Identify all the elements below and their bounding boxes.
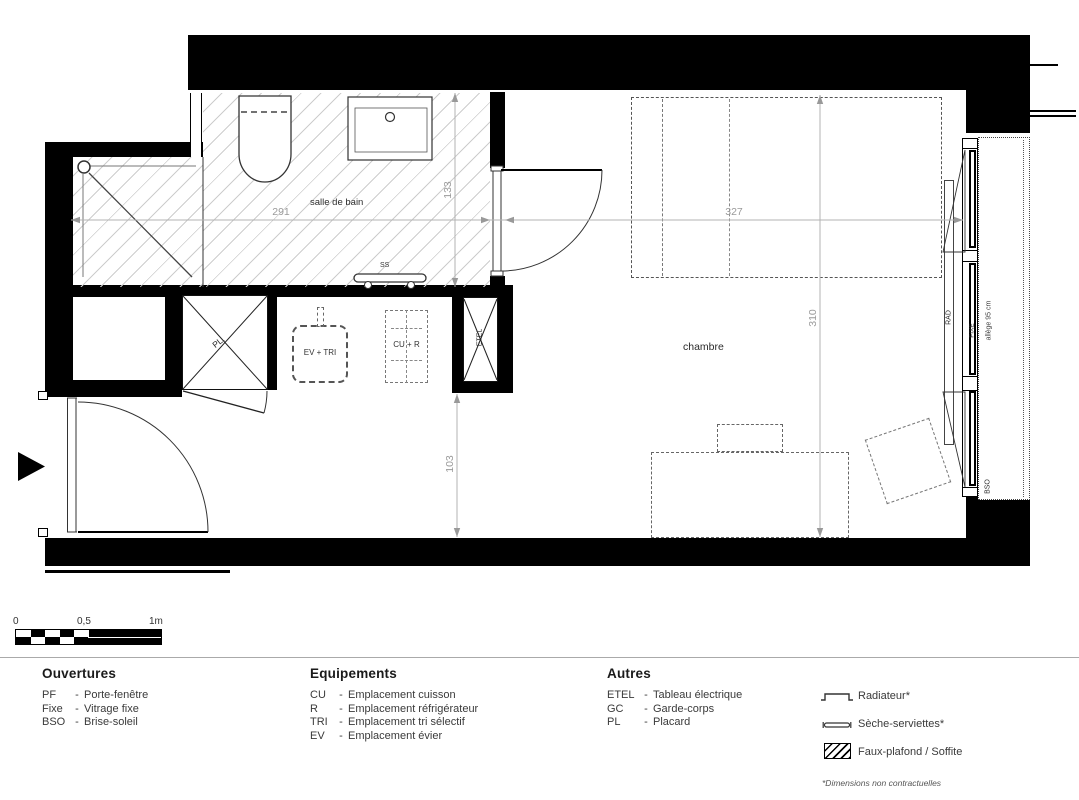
window-divider bbox=[962, 261, 978, 262]
entrance-arrow bbox=[18, 452, 45, 481]
label: Emplacement réfrigérateur bbox=[348, 703, 478, 715]
wall-bathroom-east-upper bbox=[490, 92, 505, 168]
scale-half: 0,5 bbox=[77, 616, 91, 627]
sun-shade-inner-line bbox=[1023, 140, 1024, 497]
floor-plan-sheet: salle de bain chambre SS EV + TRI CU + R… bbox=[0, 0, 1079, 800]
wall-top-right-block bbox=[966, 90, 1030, 133]
neighbour-line-1 bbox=[1030, 64, 1058, 66]
abbr: TRI bbox=[310, 716, 334, 730]
false-ceiling-icon bbox=[824, 743, 851, 759]
dim-passage: 103 bbox=[444, 449, 456, 479]
label: Emplacement évier bbox=[348, 730, 442, 742]
label: Placard bbox=[653, 716, 690, 728]
radiator-label: RAD bbox=[946, 303, 953, 333]
wall-bottom-right-block bbox=[966, 497, 1030, 542]
wall-shaft-south bbox=[45, 380, 182, 397]
legend-ouvertures-title: Ouvertures bbox=[42, 666, 116, 681]
label: Emplacement cuisson bbox=[348, 689, 456, 701]
towel-dryer-label: SS bbox=[380, 262, 389, 269]
window-divider bbox=[962, 148, 978, 149]
tap-symbol bbox=[317, 307, 324, 327]
dim-bedroom-width: 327 bbox=[719, 206, 749, 218]
door-jamb-nub-top bbox=[38, 391, 48, 400]
abbr: PF bbox=[42, 689, 70, 703]
label: Emplacement tri sélectif bbox=[348, 716, 465, 728]
towel-dryer-legend-label: Sèche-serviettes* bbox=[858, 718, 944, 730]
sink-sorting-label: EV + TRI bbox=[292, 348, 348, 357]
cooking-fridge-label: CU + R bbox=[385, 340, 428, 349]
sep: - bbox=[334, 730, 348, 744]
dim-bathroom-depth: 133 bbox=[442, 175, 454, 205]
scale-bar bbox=[15, 629, 162, 645]
wall-kitchen-east bbox=[452, 297, 463, 384]
label: Vitrage fixe bbox=[84, 703, 139, 715]
abbr: EV bbox=[310, 730, 334, 744]
sill-line-bottom-left bbox=[45, 570, 230, 573]
abbr: PL bbox=[607, 716, 639, 730]
sun-shade-label: BSO bbox=[985, 472, 992, 502]
abbr: R bbox=[310, 703, 334, 717]
wall-closet-east bbox=[268, 295, 277, 390]
cooking-zone-line-2 bbox=[391, 360, 422, 361]
sill-height-label: allège 95 cm bbox=[986, 291, 993, 351]
fixed-glazing-label: FIXE bbox=[969, 316, 976, 346]
window-sash-top bbox=[969, 150, 976, 248]
legend-separator bbox=[0, 657, 1079, 658]
bathroom-west-jamb bbox=[190, 93, 202, 157]
legend-ouvertures-list: PF-Porte-fenêtre Fixe-Vitrage fixe BSO-B… bbox=[42, 689, 148, 730]
sep: - bbox=[70, 703, 84, 717]
window-divider bbox=[962, 487, 978, 488]
abbr: BSO bbox=[42, 716, 70, 730]
desk-outline bbox=[651, 452, 849, 538]
radiator-icon bbox=[820, 690, 854, 702]
sep: - bbox=[639, 716, 653, 730]
label: Tableau électrique bbox=[653, 689, 742, 701]
abbr: CU bbox=[310, 689, 334, 703]
wall-shower-north bbox=[45, 142, 203, 157]
bed-outline bbox=[631, 97, 942, 278]
bathroom-label: salle de bain bbox=[310, 197, 363, 208]
chair-outline bbox=[717, 424, 783, 452]
bed-fold-line bbox=[729, 99, 730, 276]
window-sash-bottom bbox=[969, 391, 976, 486]
sep: - bbox=[70, 689, 84, 703]
wall-top bbox=[188, 35, 1030, 90]
shower-hatch-area bbox=[73, 157, 203, 287]
electrical-panel-label: ETEL bbox=[477, 323, 484, 353]
sep: - bbox=[639, 689, 653, 703]
abbr: GC bbox=[607, 703, 639, 717]
window-divider bbox=[962, 250, 978, 251]
legend-equipements-title: Equipements bbox=[310, 666, 397, 681]
sep: - bbox=[334, 703, 348, 717]
wall-bottom bbox=[45, 538, 1030, 566]
bed-pillow-line bbox=[662, 99, 663, 276]
towel-dryer-icon bbox=[822, 720, 852, 730]
armchair-outline bbox=[865, 418, 951, 504]
entrance-door bbox=[67, 398, 208, 532]
legend-autres-list: ETEL-Tableau électrique GC-Garde-corps P… bbox=[607, 689, 742, 730]
label: Brise-soleil bbox=[84, 716, 138, 728]
legend-equipements-list: CU-Emplacement cuisson R-Emplacement réf… bbox=[310, 689, 478, 743]
scale-zero: 0 bbox=[13, 616, 19, 627]
sep: - bbox=[70, 716, 84, 730]
abbr: ETEL bbox=[607, 689, 639, 703]
door-jamb-nub-bottom bbox=[38, 528, 48, 537]
neighbour-line-2 bbox=[1030, 110, 1076, 112]
sep: - bbox=[639, 703, 653, 717]
cooking-zone-line-1 bbox=[391, 328, 422, 329]
sep: - bbox=[334, 689, 348, 703]
bedroom-label: chambre bbox=[683, 341, 724, 353]
wall-left bbox=[45, 142, 73, 397]
sep: - bbox=[334, 716, 348, 730]
false-ceiling-legend-label: Faux-plafond / Soffite bbox=[858, 746, 962, 758]
wall-bathroom-east-lower bbox=[490, 276, 505, 297]
abbr: Fixe bbox=[42, 703, 70, 717]
radiator-legend-label: Radiateur* bbox=[858, 690, 910, 702]
dim-bathroom-width: 291 bbox=[266, 206, 296, 218]
wall-etel-east bbox=[498, 297, 513, 384]
label: Porte-fenêtre bbox=[84, 689, 148, 701]
closet-door bbox=[183, 391, 267, 413]
label: Garde-corps bbox=[653, 703, 714, 715]
neighbour-line-3 bbox=[1030, 115, 1076, 117]
dim-bedroom-depth: 310 bbox=[807, 303, 819, 333]
bathroom-door bbox=[491, 166, 602, 276]
wall-shaft-east bbox=[165, 295, 182, 390]
legend-footnote: *Dimensions non contractuelles bbox=[822, 778, 941, 788]
legend-autres-title: Autres bbox=[607, 666, 651, 681]
window-divider bbox=[962, 376, 978, 377]
scale-one: 1m bbox=[149, 616, 163, 627]
